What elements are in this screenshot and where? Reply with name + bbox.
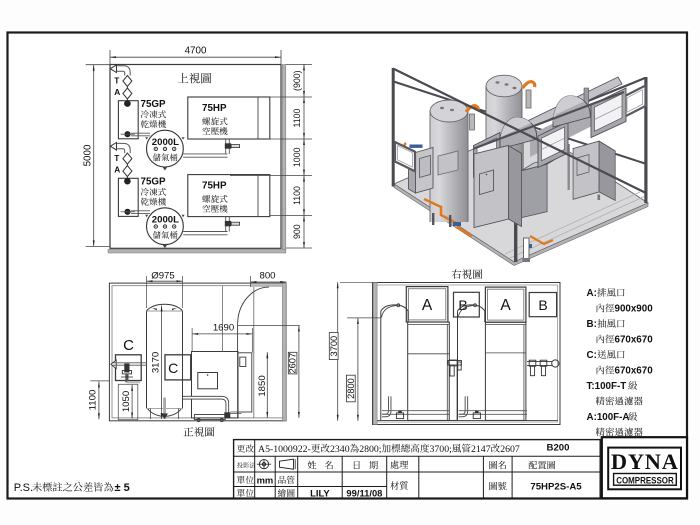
svg-text:3700;: 3700; (430, 444, 452, 455)
svg-text:A5-1000922-: A5-1000922- (258, 444, 311, 455)
svg-text:75HP2S-A5: 75HP2S-A5 (530, 482, 582, 493)
svg-text:2147: 2147 (471, 444, 491, 455)
svg-text:LILY: LILY (310, 488, 330, 499)
svg-text:900x900: 900x900 (615, 304, 654, 315)
svg-text:5000: 5000 (83, 144, 94, 166)
svg-text:2340: 2340 (330, 444, 350, 455)
svg-text:99/11/08: 99/11/08 (346, 488, 382, 499)
svg-text:A: A (422, 297, 433, 314)
svg-text:2607: 2607 (288, 353, 298, 374)
svg-text:COMPRESSOR: COMPRESSOR (616, 474, 674, 485)
svg-text:± 5: ± 5 (115, 482, 130, 494)
svg-text:A: A (114, 165, 120, 175)
svg-text:DYNA: DYNA (611, 449, 679, 474)
svg-text:A:100F-A: A:100F-A (587, 412, 630, 423)
svg-text:B200: B200 (547, 442, 570, 453)
svg-text:1100: 1100 (292, 186, 302, 205)
svg-text:Ø975: Ø975 (151, 270, 174, 281)
svg-text:900: 900 (292, 224, 302, 239)
svg-text:2607: 2607 (500, 444, 520, 455)
svg-text:670x670: 670x670 (615, 366, 654, 377)
svg-text:2800;: 2800; (359, 444, 381, 455)
svg-text:1100: 1100 (88, 390, 99, 411)
svg-text:3700: 3700 (329, 336, 339, 357)
svg-text:1000: 1000 (292, 147, 302, 167)
svg-text:1850: 1850 (257, 375, 268, 396)
svg-text:T: T (114, 153, 119, 163)
svg-text:75GP: 75GP (141, 177, 167, 188)
svg-text:A:: A: (587, 288, 597, 299)
svg-text:800: 800 (259, 270, 275, 281)
svg-text:2000L: 2000L (152, 137, 179, 148)
svg-text:mm: mm (257, 475, 274, 486)
svg-text:2000L: 2000L (152, 215, 179, 226)
svg-text:C: C (168, 360, 178, 376)
svg-text:(900): (900) (292, 70, 302, 91)
svg-text:3170: 3170 (151, 352, 162, 373)
svg-text:C: C (123, 337, 134, 354)
svg-text:75GP: 75GP (141, 99, 167, 110)
svg-text:A: A (500, 297, 511, 314)
svg-text:1050: 1050 (121, 391, 132, 412)
svg-text:B: B (538, 297, 547, 313)
svg-text:75HP: 75HP (202, 103, 227, 114)
svg-text:670x670: 670x670 (615, 335, 654, 346)
svg-text:4700: 4700 (185, 46, 207, 57)
svg-text:T:100F-T: T:100F-T (587, 381, 627, 392)
svg-text:2800: 2800 (346, 378, 356, 399)
svg-text:B:: B: (587, 319, 597, 330)
svg-text:75HP: 75HP (202, 181, 227, 192)
svg-text:1690: 1690 (213, 323, 234, 334)
svg-text:P.S.: P.S. (14, 482, 33, 494)
svg-text:A: A (114, 87, 120, 97)
svg-text:1100: 1100 (292, 108, 302, 127)
svg-text:T: T (114, 76, 119, 86)
svg-text:C:: C: (587, 350, 597, 361)
